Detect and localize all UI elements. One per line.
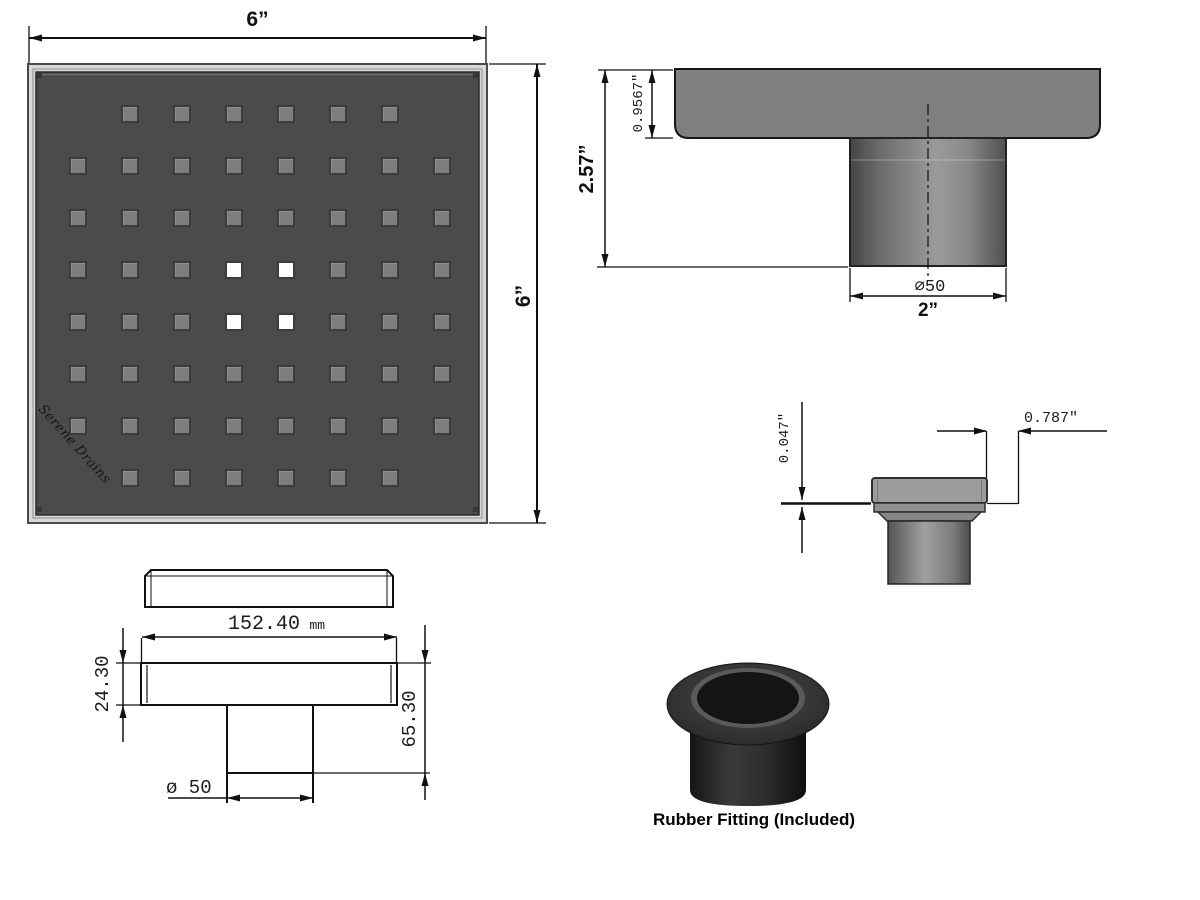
grate-hole bbox=[225, 313, 243, 331]
fitting-opening bbox=[697, 672, 799, 724]
dim-plate-thickness-09567 bbox=[645, 70, 673, 138]
grate-hole bbox=[121, 469, 139, 487]
dim-label-2in: 2” bbox=[888, 300, 968, 322]
grate-hole bbox=[121, 365, 139, 383]
grate-hole bbox=[173, 417, 191, 435]
grate-hole bbox=[277, 261, 295, 279]
section-plate bbox=[675, 69, 1100, 138]
grate-hole bbox=[173, 313, 191, 331]
grate-hole bbox=[121, 261, 139, 279]
grate-hole bbox=[329, 417, 347, 435]
grate-hole bbox=[121, 105, 139, 123]
grate-hole bbox=[433, 209, 451, 227]
grate-hole bbox=[69, 313, 87, 331]
grate-hole bbox=[277, 209, 295, 227]
grate-hole bbox=[277, 157, 295, 175]
dim-label-height-6in: 6” bbox=[512, 272, 538, 320]
grate-hole bbox=[433, 365, 451, 383]
grate-hole bbox=[173, 105, 191, 123]
grate-hole bbox=[381, 209, 399, 227]
body-side-view bbox=[141, 663, 397, 705]
rubber-fitting-caption: Rubber Fitting (Included) bbox=[638, 810, 870, 830]
grate-hole bbox=[277, 417, 295, 435]
grate-hole bbox=[173, 209, 191, 227]
rubber-fitting-image bbox=[667, 663, 829, 806]
grate-hole bbox=[433, 417, 451, 435]
drain-face bbox=[36, 72, 479, 515]
grate-hole bbox=[277, 365, 295, 383]
dim-label-0787: 0.787" bbox=[1024, 410, 1078, 427]
grate-hole bbox=[329, 105, 347, 123]
detail-pipe bbox=[888, 521, 970, 584]
grate-hole bbox=[433, 157, 451, 175]
grate-hole bbox=[277, 469, 295, 487]
detail-view-drawing bbox=[781, 402, 1107, 584]
dim-label-o50: ø 50 bbox=[166, 777, 212, 799]
grate-hole bbox=[381, 261, 399, 279]
grate-hole bbox=[121, 417, 139, 435]
grate-hole bbox=[329, 209, 347, 227]
dim-body-height-2430 bbox=[116, 628, 140, 742]
detail-flange bbox=[872, 478, 987, 503]
grate-hole bbox=[329, 365, 347, 383]
grate-hole bbox=[69, 157, 87, 175]
dim-value-15240: 152.40 bbox=[228, 613, 300, 636]
grate-hole bbox=[433, 313, 451, 331]
grate-hole bbox=[121, 209, 139, 227]
grate-hole bbox=[381, 417, 399, 435]
dim-label-width-6in: 6” bbox=[29, 8, 486, 32]
grate-hole bbox=[69, 261, 87, 279]
grate-hole bbox=[225, 417, 243, 435]
detail-taper bbox=[878, 512, 981, 521]
grate-hole bbox=[121, 313, 139, 331]
grate-hole bbox=[381, 469, 399, 487]
dim-label-15240: 152.40 mm bbox=[228, 613, 325, 636]
grate-hole bbox=[381, 365, 399, 383]
grate-hole bbox=[69, 365, 87, 383]
grate-hole bbox=[225, 365, 243, 383]
grate-hole bbox=[225, 157, 243, 175]
grate-hole bbox=[225, 469, 243, 487]
technical-drawing-canvas: 6” 6” Serene Drains 2.57” 0.9567" ∅50 2”… bbox=[0, 0, 1200, 900]
grate-hole bbox=[173, 157, 191, 175]
grate-hole bbox=[225, 209, 243, 227]
grate-hole bbox=[225, 261, 243, 279]
grate-hole bbox=[381, 157, 399, 175]
grate-hole bbox=[173, 261, 191, 279]
grate-hole bbox=[329, 469, 347, 487]
dim-label-dia50: ∅50 bbox=[890, 276, 970, 297]
grate-hole bbox=[277, 105, 295, 123]
grate-hole bbox=[277, 313, 295, 331]
mm-view-drawing bbox=[116, 570, 431, 803]
grate-hole bbox=[69, 209, 87, 227]
drawing-linework bbox=[0, 0, 1200, 900]
grate-hole bbox=[225, 105, 243, 123]
dim-label-09567: 0.9567" bbox=[631, 61, 649, 145]
dim-label-2430: 24.30 bbox=[92, 644, 112, 724]
dim-width-15240 bbox=[142, 634, 398, 664]
dim-label-6530: 65.30 bbox=[399, 679, 419, 759]
grate-hole bbox=[173, 469, 191, 487]
grate-hole bbox=[329, 157, 347, 175]
dim-unit-mm: mm bbox=[309, 618, 325, 633]
detail-lip bbox=[874, 503, 985, 512]
grate-hole bbox=[381, 313, 399, 331]
dim-label-0047: 0.047" bbox=[777, 398, 795, 478]
grate-hole bbox=[121, 157, 139, 175]
grate-hole bbox=[173, 365, 191, 383]
grate-hole bbox=[329, 261, 347, 279]
grate-hole bbox=[329, 313, 347, 331]
grate-hole bbox=[433, 261, 451, 279]
grate-hole bbox=[381, 105, 399, 123]
dim-label-257: 2.57” bbox=[576, 138, 600, 200]
section-view-drawing bbox=[597, 69, 1100, 302]
